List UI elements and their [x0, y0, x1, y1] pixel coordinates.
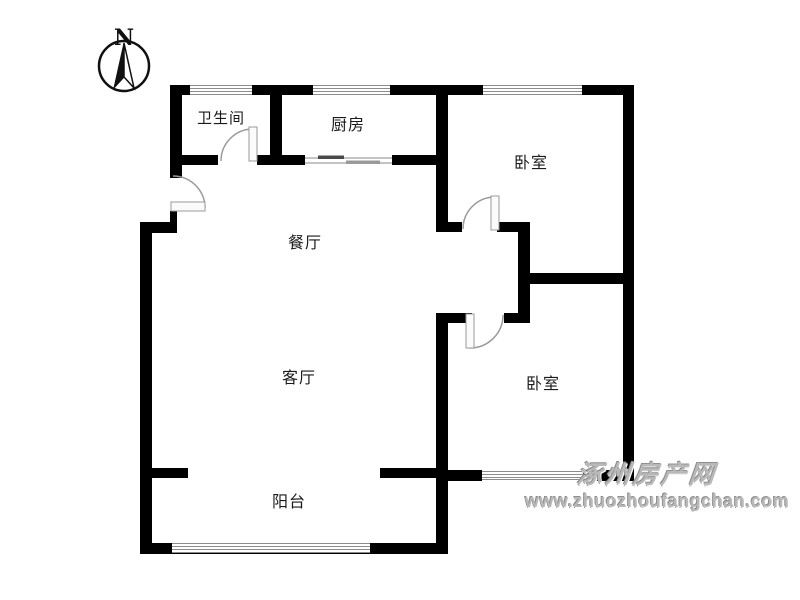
room-label-living: 客厅 — [282, 371, 316, 387]
room-label-balcony: 阳台 — [272, 495, 306, 511]
north-compass-icon: N — [88, 20, 162, 116]
room-label-kitchen: 厨房 — [331, 118, 365, 134]
bedroom1-door-icon — [463, 196, 499, 230]
floor-plan: N 卫生间 厨房 卧室 餐厅 客厅 卧室 阳台 涿州房产网 www.zhuozh… — [0, 0, 800, 600]
entry-door-icon — [171, 176, 205, 211]
bathroom-door-icon — [221, 127, 257, 161]
room-label-dining: 餐厅 — [288, 236, 322, 252]
room-label-bedroom-top: 卧室 — [514, 156, 548, 172]
room-label-bathroom: 卫生间 — [197, 111, 245, 126]
bedroom2-door-icon — [466, 314, 503, 348]
kitchen-sliding-door-icon — [305, 156, 392, 165]
room-label-bedroom-bottom: 卧室 — [526, 377, 560, 393]
